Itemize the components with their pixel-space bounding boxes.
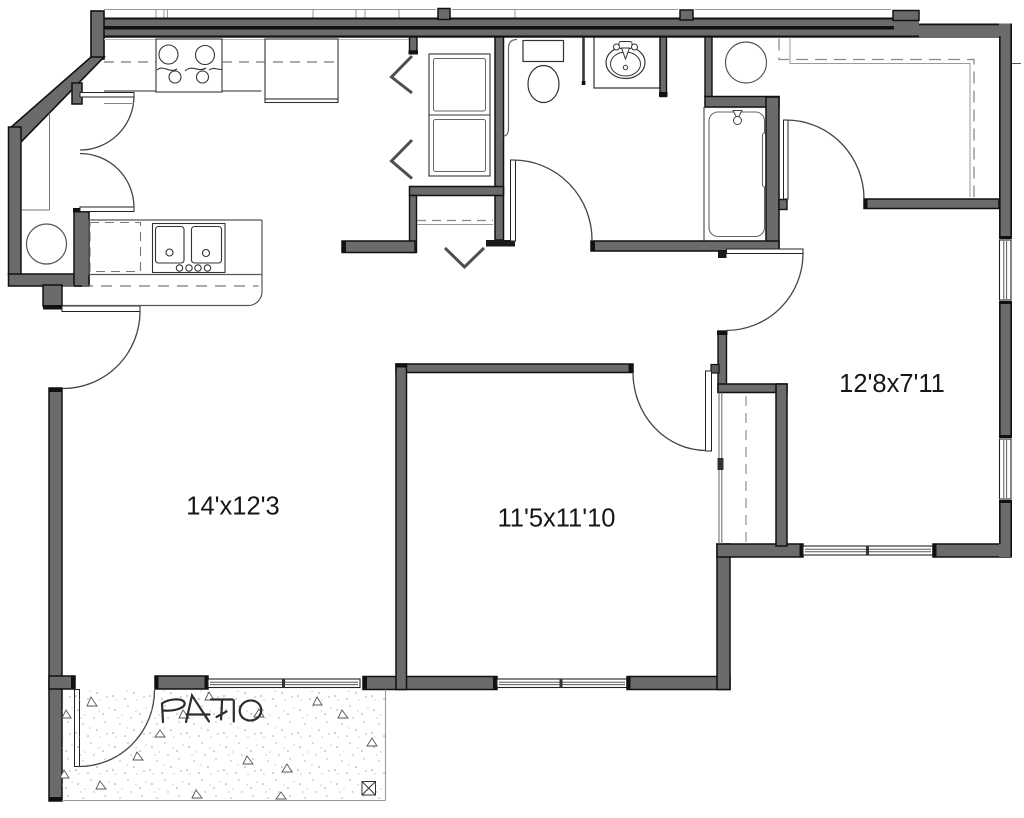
svg-text:14'x12'3: 14'x12'3: [186, 493, 279, 521]
svg-text:11'5x11'10: 11'5x11'10: [498, 505, 616, 533]
svg-text:12'8x7'11: 12'8x7'11: [839, 370, 945, 398]
